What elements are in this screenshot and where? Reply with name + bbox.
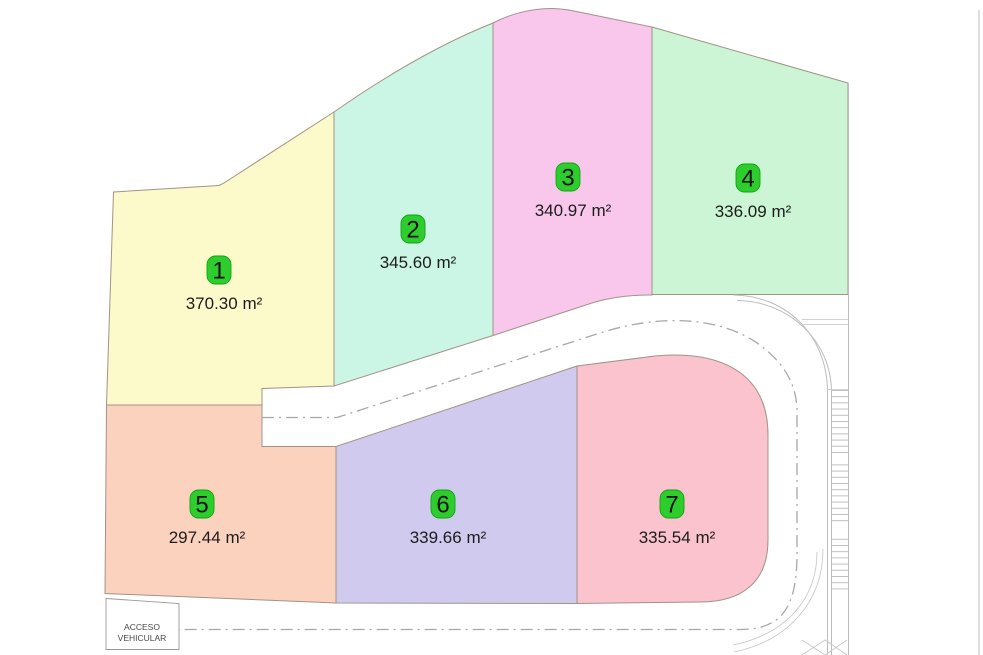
lot-4-area: 336.09 m²: [715, 202, 792, 221]
lot-2-number: 2: [406, 217, 419, 244]
site-plan-drawing: ACCESO VEHICULAR 1 370.30 m² 2 345.60 m²…: [0, 0, 983, 655]
lot-3-number: 3: [561, 165, 574, 192]
lot-4-parcel: [652, 27, 848, 295]
lot-7-parcel: [577, 355, 768, 603]
lot-1-area: 370.30 m²: [186, 294, 263, 313]
lot-7-number: 7: [665, 492, 678, 519]
sidewalk-hatch-band-3: [832, 536, 849, 592]
lot-6-parcel: [336, 366, 577, 604]
access-label-line1: ACCESO: [124, 622, 160, 632]
lot-3-area: 340.97 m²: [535, 201, 612, 220]
lot-6-number: 6: [436, 492, 449, 519]
lot-7-area: 335.54 m²: [639, 528, 716, 547]
sidewalk-hatch-band-1: [832, 390, 849, 453]
access-label-line2: VEHICULAR: [118, 633, 167, 643]
sidewalk-hatch-band-2: [832, 464, 849, 524]
lot-6-area: 339.66 m²: [410, 528, 487, 547]
lot-5-parcel: [105, 405, 336, 603]
vehicular-access: ACCESO VEHICULAR: [106, 599, 179, 650]
lot-1-number: 1: [212, 258, 225, 285]
ramp-cross-marking: [802, 640, 847, 655]
lot-5-area: 297.44 m²: [169, 528, 246, 547]
lot-4-number: 4: [741, 166, 754, 193]
side-street-line: [802, 320, 849, 390]
lot-2-area: 345.60 m²: [380, 253, 457, 272]
site-plan: ACCESO VEHICULAR 1 370.30 m² 2 345.60 m²…: [0, 0, 983, 655]
lot-5-number: 5: [195, 492, 208, 519]
lot-2-parcel: [334, 23, 493, 386]
